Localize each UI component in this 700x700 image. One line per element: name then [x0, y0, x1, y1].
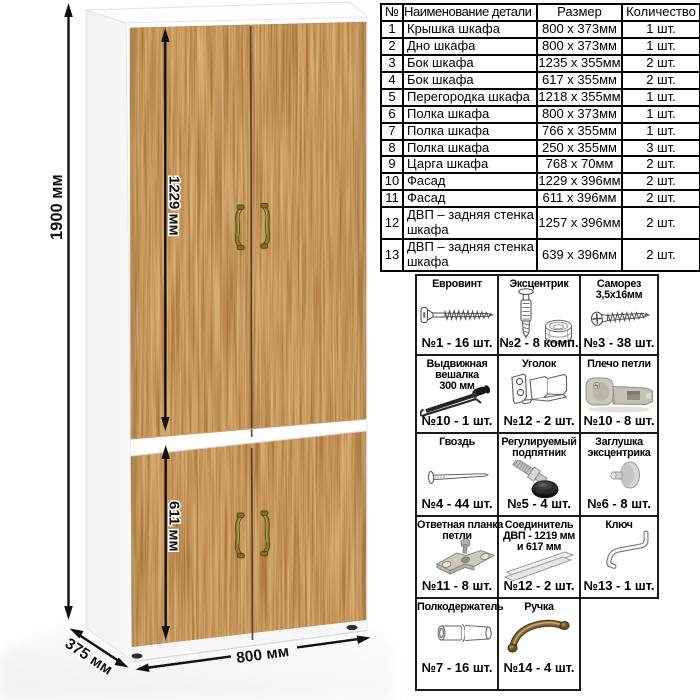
svg-text:611 мм: 611 мм	[166, 501, 183, 552]
svg-text:1229 мм: 1229 мм	[166, 176, 183, 236]
svg-text:1900 мм: 1900 мм	[48, 174, 66, 240]
